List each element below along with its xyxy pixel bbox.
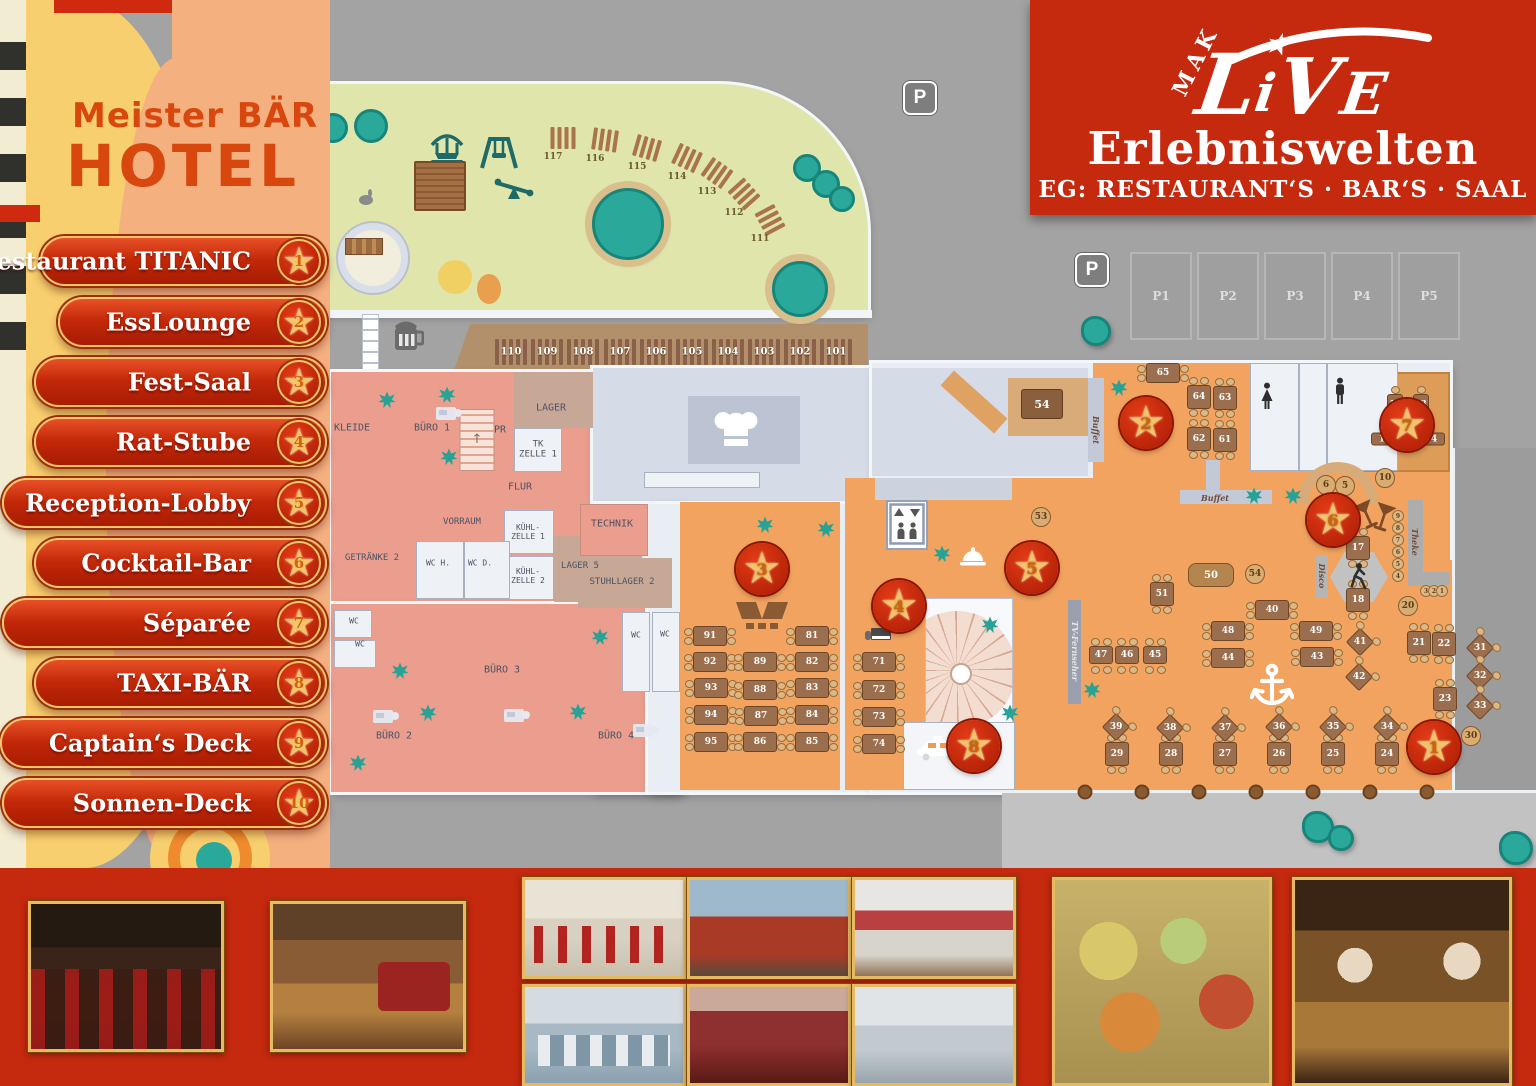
legend-star-badge: 3 (277, 360, 321, 404)
corridor (875, 478, 1012, 500)
legend-label: Séparée (143, 609, 251, 638)
legend-star-badge: 8 (277, 661, 321, 705)
legend-item-restaurant-titanic[interactable]: Restaurant TITANIC1 (40, 236, 327, 286)
table-92: 92 (693, 652, 727, 672)
room-label: WC D. (468, 558, 492, 567)
reception-bell-icon (959, 546, 987, 568)
star-marker-7[interactable]: 7 (1381, 399, 1433, 451)
legend-star-badge: 2 (277, 300, 321, 344)
legend-item-reception-lobby[interactable]: Reception-Lobby5 (2, 478, 327, 528)
banner-floor-line: EG: RESTAURANT‘S · BAR‘S · SAAL (1030, 176, 1536, 203)
star-marker-3[interactable]: 3 (736, 543, 788, 595)
table-45: 45 (1143, 646, 1167, 664)
tree-icon (318, 113, 348, 143)
legend-item-captain-s-deck[interactable]: Captain‘s Deck9 (0, 718, 327, 768)
legend-label: Sonnen-Deck (73, 789, 251, 818)
table-64: 64 (1187, 385, 1211, 409)
legend-star-badge: 1 (277, 239, 321, 283)
photo-cocktail-bar-staff[interactable] (1292, 877, 1512, 1086)
legend-star-badge: 7 (277, 601, 321, 645)
zone-esslounge-south (1093, 472, 1250, 564)
swing-icon (479, 134, 519, 170)
room-wc-d (464, 541, 510, 599)
tree-icon (592, 188, 664, 260)
legend-item-sonnen-deck[interactable]: Sonnen-Deck10 (2, 778, 327, 828)
planter-icon (1249, 785, 1264, 800)
lounger-number: 113 (698, 187, 717, 197)
parking-stall-P1: P1 (1130, 252, 1192, 340)
table-26: 26 (1267, 742, 1291, 766)
table-21: 21 (1407, 631, 1431, 655)
legend-item-fest-saal[interactable]: Fest-Saal3 (34, 357, 327, 407)
wc-divider-1 (1298, 363, 1300, 471)
buffet-counter-2b (1206, 460, 1220, 492)
terrace-table-group-105: 105 (676, 339, 708, 365)
room-label: TECHNIK (591, 518, 633, 530)
bush-icon (1328, 825, 1354, 851)
lounger-number: 112 (725, 208, 744, 218)
desk-icon (498, 704, 530, 728)
parking-stalls: P1P2P3P4P5 (1130, 252, 1460, 340)
table-28: 28 (1159, 742, 1183, 766)
room-wc-h (416, 541, 464, 599)
climbing-frame-icon (414, 161, 466, 211)
table-71: 71 (862, 652, 896, 672)
table-54: 54 (1245, 564, 1265, 584)
wc-divider-2 (1326, 363, 1328, 471)
planter-icon (1363, 785, 1378, 800)
table-40: 40 (1255, 600, 1289, 620)
cocktail-glasses-icon (1353, 498, 1399, 540)
lounger-number: 114 (668, 172, 687, 182)
room-label: KLEIDE (334, 422, 370, 434)
terrace-table-group-108: 108 (567, 339, 599, 365)
room-label: LAGER (536, 402, 566, 414)
room-label: BÜRO 2 (376, 730, 412, 742)
room-label: BÜRO 3 (484, 664, 520, 676)
legend-item-s-par-e[interactable]: Séparée7 (2, 598, 327, 648)
table-88: 88 (743, 680, 777, 700)
lounger-number: 117 (544, 152, 563, 162)
legend-label: Restaurant TITANIC (0, 247, 251, 276)
terrace-table-group-109: 109 (531, 339, 563, 365)
star-marker-5[interactable]: 5 (1006, 542, 1058, 594)
room-label: TK ZELLE 1 (519, 440, 557, 461)
room-lager (514, 372, 593, 428)
photo-hotel-bedroom[interactable] (852, 877, 1016, 979)
star-marker-6[interactable]: 6 (1307, 494, 1359, 546)
counter-label: Buffet (1201, 493, 1229, 503)
room-label: STUHLLAGER 2 (589, 577, 654, 587)
seesaw-icon (493, 178, 535, 202)
legend-label: EssLounge (106, 308, 251, 337)
room-label: KÜHL- ZELLE 1 (511, 523, 545, 541)
star-marker-1[interactable]: 1 (1408, 721, 1460, 773)
table-91: 91 (693, 626, 727, 646)
bush-icon (1499, 831, 1533, 865)
legend-label: Cocktail-Bar (81, 549, 251, 578)
tree-icon (772, 261, 828, 317)
legend-star-badge: 4 (277, 420, 321, 464)
sand-mound (477, 274, 501, 304)
planter-icon (1078, 785, 1093, 800)
table-85: 85 (795, 732, 829, 752)
live-letter-e: E (1338, 70, 1389, 120)
table-54: 54 (1021, 389, 1063, 419)
elevator-icon (889, 503, 925, 545)
p-sign-icon: P (903, 81, 937, 115)
table-95: 95 (694, 732, 728, 752)
table-44: 44 (1211, 648, 1245, 668)
wc-block (1250, 363, 1398, 471)
room-wc-se2 (652, 612, 680, 692)
table-1: 1 (1436, 585, 1448, 597)
room-label: KÜHL- ZELLE 2 (511, 567, 545, 585)
table-84: 84 (795, 705, 829, 725)
table-51: 51 (1150, 582, 1174, 606)
carousel-icon (428, 130, 466, 164)
table-48: 48 (1211, 621, 1245, 641)
tree-icon (829, 186, 855, 212)
legend-item-rat-stube[interactable]: Rat-Stube4 (34, 417, 327, 467)
parking-stall-P5: P5 (1398, 252, 1460, 340)
room-label: GETRÄNKE 2 (345, 553, 399, 563)
table-50: 50 (1188, 563, 1234, 587)
legend-label: Rat-Stube (116, 428, 251, 457)
beer-mug-icon (392, 318, 424, 354)
star-marker-2[interactable]: 2 (1120, 397, 1172, 449)
table-93: 93 (694, 678, 728, 698)
desk-icon (627, 719, 659, 743)
table-94: 94 (694, 705, 728, 725)
parking-stall-P3: P3 (1264, 252, 1326, 340)
planter-icon (1306, 785, 1321, 800)
terrace-table-group-107: 107 (604, 339, 636, 365)
lounger-number: 111 (751, 234, 770, 244)
sandpit (438, 260, 472, 294)
terrace-table-group-106: 106 (640, 339, 672, 365)
room-label: PR (494, 424, 506, 436)
table-25: 25 (1321, 742, 1345, 766)
terrace-table-group-101: 101 (820, 339, 852, 365)
south-walkway (1002, 790, 1536, 868)
photo-event-hall[interactable] (522, 984, 686, 1086)
poster: { "branding": { "hotel_line1": "Meister … (0, 0, 1536, 1086)
legend-star-badge: 6 (277, 541, 321, 585)
room-label: WC (349, 616, 359, 625)
room-label: WC H. (426, 558, 450, 567)
stairs-icon (460, 409, 495, 471)
top-banner: MAK LiVE ★ Erlebniswelten EG: RESTAURANT… (1030, 0, 1536, 215)
lounger-number: 115 (628, 162, 647, 172)
room-label: WC (660, 629, 670, 638)
room-label: WC (355, 639, 365, 648)
terrace-table-group-102: 102 (784, 339, 816, 365)
room-label: LAGER 5 (561, 561, 599, 571)
terrace-table-group-103: 103 (748, 339, 780, 365)
planter-icon (1135, 785, 1150, 800)
counter-label: Disco (1317, 564, 1327, 589)
table-18: 18 (1346, 588, 1370, 612)
table-62: 62 (1187, 427, 1211, 451)
table-22: 22 (1432, 632, 1456, 656)
table-24: 24 (1375, 742, 1399, 766)
table-5: 5 (1392, 558, 1404, 570)
spiral-stair-room (925, 598, 1013, 728)
kitchen-counter (644, 472, 760, 488)
photo-red-lounge[interactable] (687, 984, 851, 1086)
legend-item-cocktail-bar[interactable]: Cocktail-Bar6 (34, 538, 327, 588)
table-63: 63 (1213, 386, 1237, 410)
table-87: 87 (744, 706, 778, 726)
tree-icon (354, 109, 388, 143)
parking-stall-P4: P4 (1331, 252, 1393, 340)
anchor-icon (1250, 663, 1294, 709)
legend-label: Reception-Lobby (25, 489, 251, 518)
table-47: 47 (1089, 646, 1113, 664)
table-86: 86 (743, 732, 777, 752)
table-10: 10 (1375, 468, 1395, 488)
star-marker-4[interactable]: 4 (873, 580, 925, 632)
photo-strip (0, 868, 1536, 1086)
table-72: 72 (862, 680, 896, 700)
room-label: VORRAUM (443, 517, 481, 527)
table-65: 65 (1146, 363, 1180, 383)
table-27: 27 (1213, 742, 1237, 766)
table-83: 83 (795, 678, 829, 698)
table-46: 46 (1115, 646, 1139, 664)
photo-buffet-food[interactable] (1052, 877, 1272, 1086)
wc-woman-icon (1260, 382, 1275, 410)
table-20: 20 (1398, 596, 1418, 616)
legend-label: Fest-Saal (128, 368, 251, 397)
table-53: 53 (1031, 507, 1051, 527)
table-82: 82 (795, 652, 829, 672)
castle-tower-icon (338, 223, 408, 293)
p-sign-icon: P (1075, 253, 1109, 287)
sun-lounger-group-117 (551, 127, 576, 149)
table-74: 74 (862, 734, 896, 754)
legend-star-badge: 9 (277, 721, 321, 765)
chef-hat-icon (714, 409, 758, 451)
photo-banquet-hall[interactable] (522, 877, 686, 979)
swoosh-icon (1226, 16, 1436, 68)
room-label: FLUR (508, 481, 532, 493)
parking-stall-P2: P2 (1197, 252, 1259, 340)
lounger-number: 116 (586, 154, 605, 164)
table-81: 81 (795, 626, 829, 646)
table-4: 4 (1392, 570, 1404, 582)
terrace-table-group-104: 104 (712, 339, 744, 365)
room-technik (580, 504, 648, 556)
legend-item-taxi-b-r[interactable]: TAXI-BÄR8 (34, 658, 327, 708)
table-30: 30 (1461, 726, 1481, 746)
table-23: 23 (1433, 687, 1457, 711)
sun-lounger-group-116 (591, 127, 619, 152)
legend-label: Captain‘s Deck (49, 729, 251, 758)
theke-counter-foot (1408, 572, 1450, 585)
star-marker-8[interactable]: 8 (948, 720, 1000, 772)
photo-bathroom[interactable] (852, 984, 1016, 1086)
dancer-icon (1348, 562, 1368, 590)
room-label: WC (631, 630, 641, 639)
bush-icon (1081, 316, 1111, 346)
photo-hotel-exterior[interactable] (687, 877, 851, 979)
table-49: 49 (1299, 621, 1333, 641)
legend-star-badge: 5 (277, 481, 321, 525)
planter-icon (1420, 785, 1435, 800)
legend-item-esslounge[interactable]: EssLounge2 (58, 297, 327, 347)
banner-subtitle: Erlebniswelten (1030, 122, 1536, 175)
table-5: 5 (1335, 476, 1355, 496)
counter-label: Theke (1410, 528, 1420, 556)
rabbit-icon (359, 195, 373, 205)
garden-fence (362, 314, 379, 374)
table-6: 6 (1392, 546, 1404, 558)
desk-icon (430, 402, 462, 426)
table-29: 29 (1105, 742, 1129, 766)
legend-label: TAXI-BÄR (117, 669, 251, 698)
wc-man-icon (1333, 377, 1348, 405)
stage-icon (732, 600, 792, 630)
desk-icon (367, 705, 399, 729)
table-73: 73 (862, 707, 896, 727)
photo-reception-lobby[interactable] (270, 901, 466, 1052)
room-wc-se1 (622, 612, 650, 692)
table-6: 6 (1316, 475, 1336, 495)
planter-icon (1192, 785, 1207, 800)
table-89: 89 (743, 652, 777, 672)
counter-label: TV-Fernseher (1070, 621, 1080, 681)
table-43: 43 (1300, 647, 1334, 667)
photo-restaurant-interior[interactable] (28, 901, 224, 1052)
counter-label: Buffet (1091, 416, 1101, 444)
terrace-table-group-110: 110 (495, 339, 527, 365)
table-61: 61 (1213, 428, 1237, 452)
legend-star-badge: 10 (277, 781, 321, 825)
